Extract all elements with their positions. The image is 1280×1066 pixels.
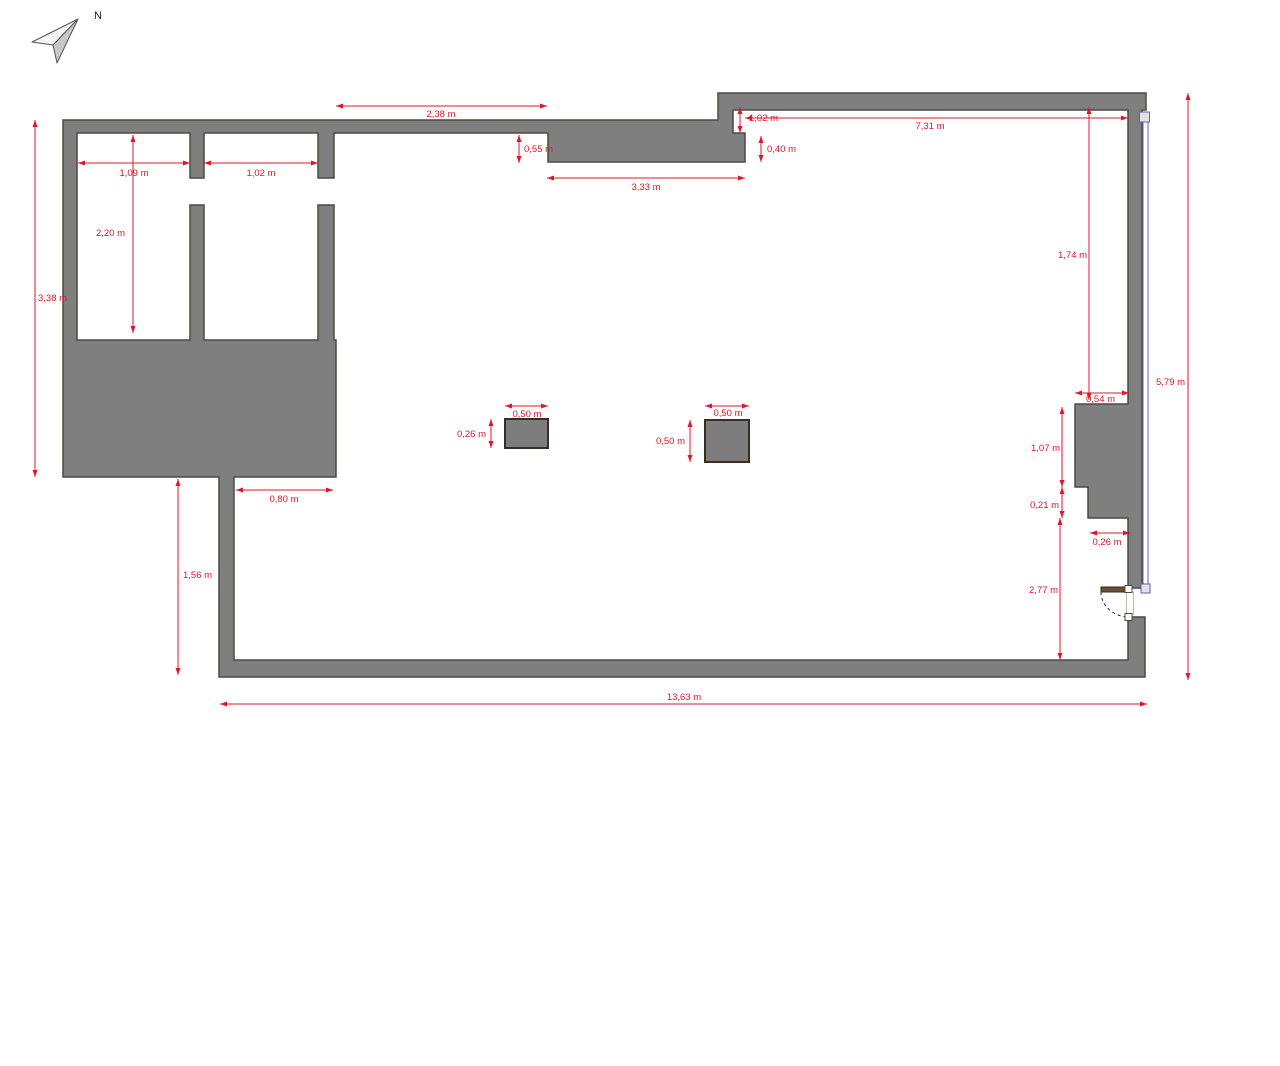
- dim-label-recess-depth-left: 0,55 m: [524, 144, 553, 155]
- dim-label-right-total-height: 5,79 m: [1156, 377, 1185, 388]
- dim-room2-width: 1,02 m: [204, 163, 318, 179]
- door-hinge-top: [1125, 586, 1132, 593]
- column-2: [705, 420, 749, 462]
- floor-plan-page: N 2,38 m 1,02 m 7,31 m 0,55 m 0,40 m 3,3…: [0, 0, 1280, 1066]
- dim-label-col1-width: 0,50 m: [512, 409, 541, 420]
- dim-label-room2-width: 1,02 m: [246, 168, 275, 179]
- dim-label-pier-width: 0,54 m: [1086, 394, 1115, 405]
- dim-label-col2-height: 0,50 m: [656, 436, 685, 447]
- dim-label-bottom-total-width: 13,63 m: [667, 692, 701, 703]
- dim-recess-width: 3,33 m: [547, 178, 745, 193]
- dim-label-pier-step-height: 0,21 m: [1030, 500, 1059, 511]
- north-label: N: [94, 10, 102, 22]
- dim-col1-width: 0,50 m: [505, 406, 548, 420]
- dim-label-col1-height: 0,26 m: [457, 429, 486, 440]
- dim-right-upper-height: 1,74 m: [1058, 107, 1089, 400]
- dim-col2-width: 0,50 m: [705, 406, 749, 419]
- dim-label-top-right-span: 7,31 m: [915, 121, 944, 132]
- dim-label-recess-depth-right: 0,40 m: [767, 144, 796, 155]
- dim-pier-upper-height: 1,07 m: [1031, 407, 1062, 487]
- dim-label-room-depth: 2,20 m: [96, 228, 125, 239]
- window-end-marker-top: [1140, 112, 1150, 122]
- dim-pier-width: 0,54 m: [1075, 393, 1129, 405]
- compass: N: [32, 10, 102, 63]
- dim-label-pier-upper-height: 1,07 m: [1031, 443, 1060, 454]
- door-hinge-bottom: [1125, 614, 1132, 621]
- dim-label-right-upper-height: 1,74 m: [1058, 250, 1087, 261]
- dim-top-step: 1,02 m: [740, 107, 778, 133]
- dim-label-pier-lower-width: 0,26 m: [1092, 537, 1121, 548]
- dim-label-top-span: 2,38 m: [426, 109, 455, 120]
- dim-room1-width: 1,09 m: [78, 163, 190, 179]
- column-1: [505, 419, 548, 448]
- dim-col1-height: 0,26 m: [457, 419, 491, 448]
- dim-recess-depth-right: 0,40 m: [761, 136, 796, 162]
- dim-top-span: 2,38 m: [336, 106, 547, 120]
- dim-pier-lower-width: 0,26 m: [1090, 533, 1130, 548]
- dim-label-left-height: 3,38 m: [38, 293, 67, 304]
- dim-label-door-wall-height: 2,77 m: [1029, 585, 1058, 596]
- dim-lower-wall-height: 1,56 m: [178, 479, 212, 675]
- dim-col2-height: 0,50 m: [656, 420, 690, 462]
- dim-label-passage-width: 0,80 m: [269, 494, 298, 505]
- wall-outline: [63, 93, 1146, 677]
- floor-plan-drawing: N 2,38 m 1,02 m 7,31 m 0,55 m 0,40 m 3,3…: [0, 0, 1280, 1066]
- dim-top-right-span: 7,31 m: [745, 118, 1128, 132]
- dim-label-col2-width: 0,50 m: [713, 408, 742, 419]
- dim-right-total-height: 5,79 m: [1156, 93, 1188, 680]
- dim-passage-width: 0,80 m: [236, 490, 333, 505]
- window-end-marker-bottom: [1141, 584, 1150, 593]
- window-glazing: [1143, 122, 1148, 584]
- dim-door-wall-height: 2,77 m: [1029, 518, 1060, 660]
- dim-bottom-total-width: 13,63 m: [220, 692, 1147, 704]
- door: [1101, 586, 1134, 621]
- dim-label-recess-width: 3,33 m: [631, 182, 660, 193]
- dim-label-lower-wall-height: 1,56 m: [183, 570, 212, 581]
- dim-label-room1-width: 1,09 m: [119, 168, 148, 179]
- dim-pier-step-height: 0,21 m: [1030, 487, 1062, 518]
- dim-room-depth: 2,20 m: [96, 135, 133, 333]
- door-frame: [1127, 592, 1134, 614]
